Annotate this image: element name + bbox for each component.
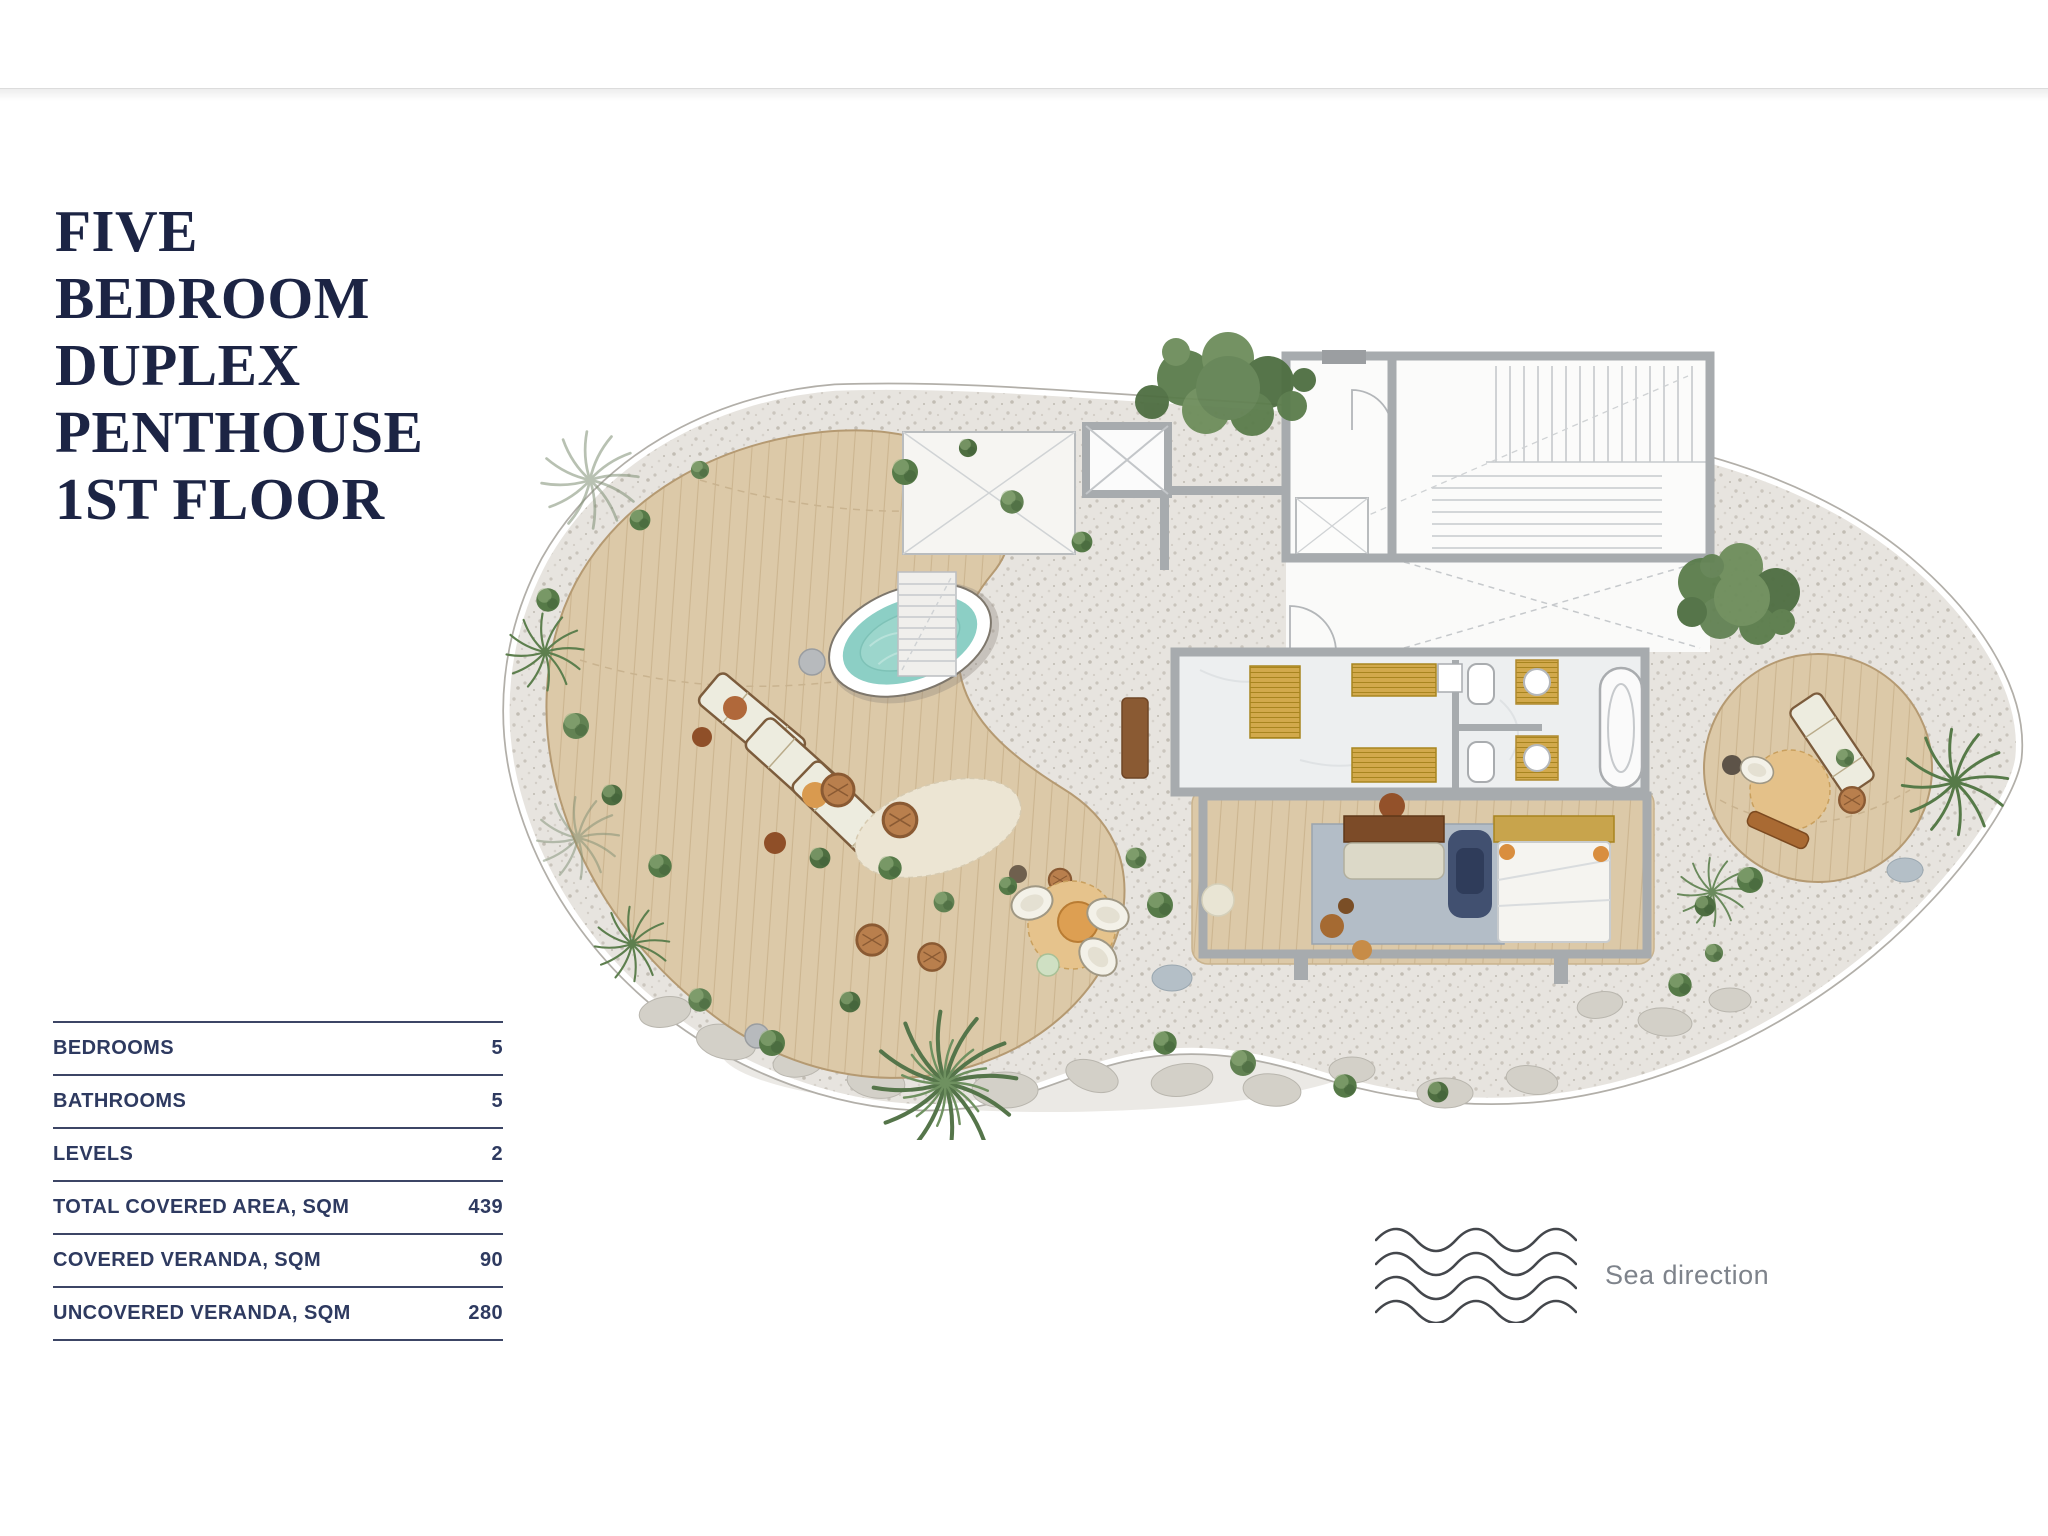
- table-row: LEVELS 2: [53, 1129, 503, 1182]
- spec-label: LEVELS: [53, 1143, 133, 1166]
- sun-deck: [1704, 654, 1932, 882]
- spec-value: 90: [480, 1249, 503, 1272]
- shaft: [1296, 498, 1368, 554]
- waves-icon: [1375, 1227, 1577, 1323]
- floor-plan: [470, 330, 2030, 1140]
- headboard: [1494, 816, 1614, 842]
- title-line: PENTHOUSE: [55, 399, 423, 466]
- spec-label: BEDROOMS: [53, 1037, 174, 1060]
- sea-direction-legend: Sea direction: [1375, 1227, 1769, 1323]
- page-edge-shadow: [0, 88, 2048, 101]
- table-row: UNCOVERED VERANDA, SQM 280: [53, 1288, 503, 1341]
- bed: [1498, 842, 1610, 942]
- title-line: FIVE: [55, 198, 423, 265]
- wardrobe: [1352, 748, 1436, 782]
- void-strip: [1286, 556, 1710, 652]
- title-line: DUPLEX: [55, 332, 423, 399]
- page-title: FIVE BEDROOM DUPLEX PENTHOUSE 1ST FLOOR: [55, 198, 423, 533]
- spec-label: COVERED VERANDA, SQM: [53, 1249, 321, 1272]
- sink: [1524, 745, 1550, 771]
- table-row: BATHROOMS 5: [53, 1076, 503, 1129]
- sea-direction-label: Sea direction: [1605, 1260, 1769, 1291]
- spec-label: BATHROOMS: [53, 1090, 186, 1113]
- title-line: 1ST FLOOR: [55, 466, 423, 533]
- elevator: [1086, 426, 1168, 494]
- outdoor-stairs: [898, 572, 956, 676]
- spec-label: UNCOVERED VERANDA, SQM: [53, 1302, 351, 1325]
- table-row: COVERED VERANDA, SQM 90: [53, 1235, 503, 1288]
- table-row: TOTAL COVERED AREA, SQM 439: [53, 1182, 503, 1235]
- spec-value: 2: [491, 1143, 503, 1166]
- skylight-void: [903, 432, 1075, 554]
- table-row: BEDROOMS 5: [53, 1023, 503, 1076]
- toilet: [1468, 664, 1494, 704]
- garden-bench: [1122, 698, 1148, 778]
- sink: [1524, 669, 1550, 695]
- wardrobe: [1250, 666, 1300, 738]
- bathtub: [1600, 668, 1642, 788]
- spec-label: TOTAL COVERED AREA, SQM: [53, 1196, 349, 1219]
- desk-chair: [1379, 793, 1405, 819]
- spec-value: 280: [468, 1302, 503, 1325]
- specs-table: BEDROOMS 5 BATHROOMS 5 LEVELS 2 TOTAL CO…: [53, 1021, 503, 1341]
- spec-value: 439: [468, 1196, 503, 1219]
- desk: [1344, 816, 1444, 842]
- sofa: [1344, 843, 1444, 879]
- title-line: BEDROOM: [55, 265, 423, 332]
- wardrobe: [1352, 664, 1436, 696]
- toilet: [1468, 742, 1494, 782]
